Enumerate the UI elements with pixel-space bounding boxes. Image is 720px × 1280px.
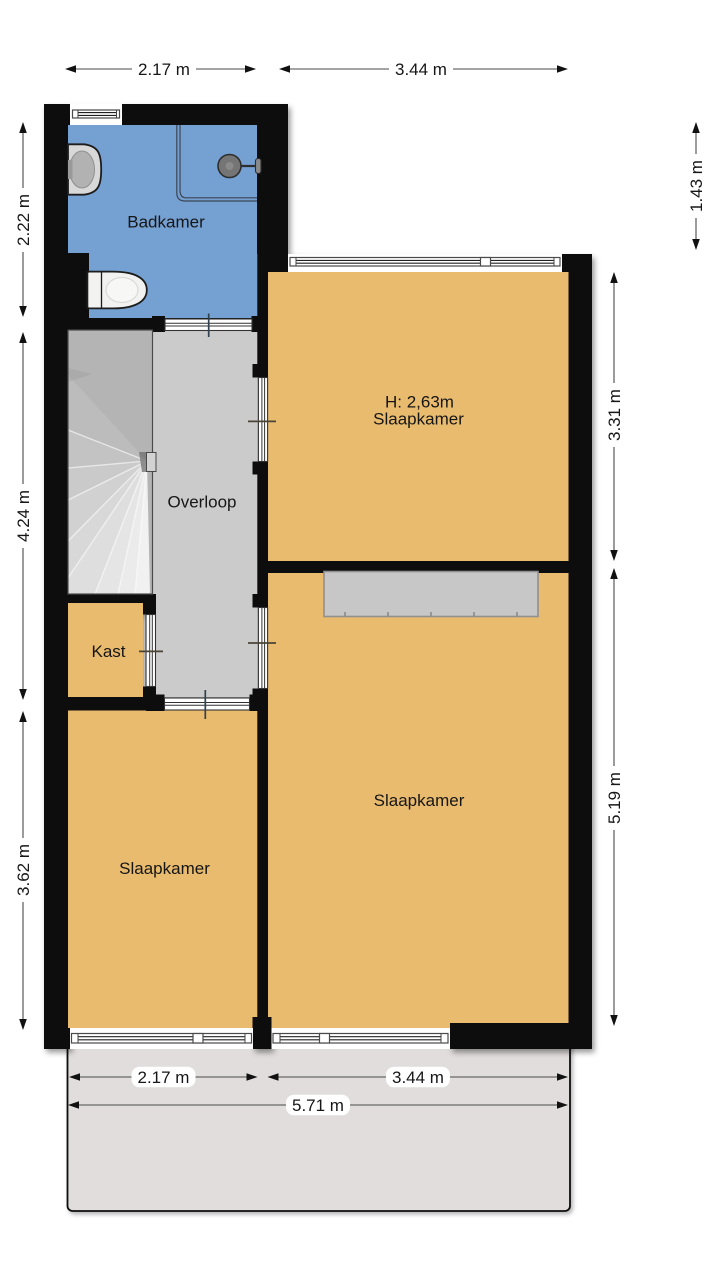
svg-text:Badkamer: Badkamer xyxy=(127,213,205,232)
svg-text:2.17 m: 2.17 m xyxy=(138,1068,190,1087)
svg-text:Overloop: Overloop xyxy=(168,493,237,512)
svg-text:Slaapkamer: Slaapkamer xyxy=(373,410,464,429)
svg-text:Slaapkamer: Slaapkamer xyxy=(119,859,210,878)
svg-text:3.62 m: 3.62 m xyxy=(14,844,33,896)
svg-text:5.71 m: 5.71 m xyxy=(292,1096,344,1115)
svg-text:2.22 m: 2.22 m xyxy=(14,194,33,246)
svg-text:Kast: Kast xyxy=(91,642,125,661)
svg-text:2.17 m: 2.17 m xyxy=(138,60,190,79)
svg-text:Slaapkamer: Slaapkamer xyxy=(374,791,465,810)
svg-text:3.31 m: 3.31 m xyxy=(605,389,624,441)
svg-text:3.44 m: 3.44 m xyxy=(392,1068,444,1087)
svg-text:5.19 m: 5.19 m xyxy=(605,772,624,824)
svg-text:1.43 m: 1.43 m xyxy=(687,160,706,212)
svg-text:3.44 m: 3.44 m xyxy=(395,60,447,79)
svg-text:4.24 m: 4.24 m xyxy=(14,490,33,542)
